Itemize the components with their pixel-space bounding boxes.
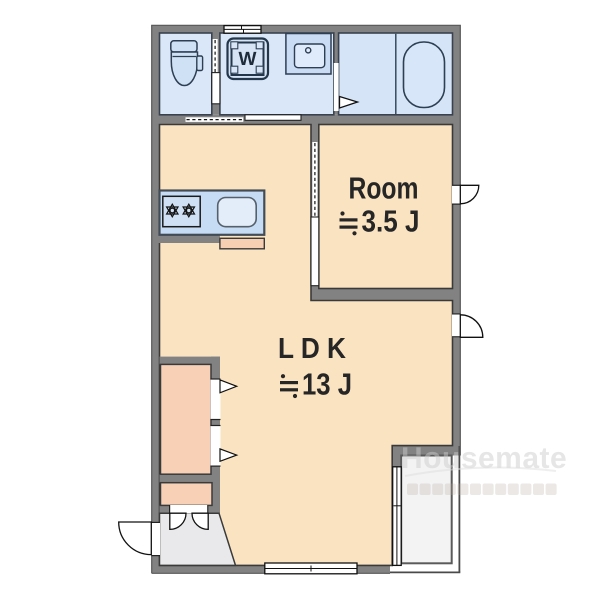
svg-text:3.5 J: 3.5 J xyxy=(362,205,420,239)
svg-text:L D K: L D K xyxy=(278,333,346,365)
svg-text:W: W xyxy=(239,49,257,70)
svg-text:13 J: 13 J xyxy=(302,368,352,402)
svg-text:Room: Room xyxy=(349,172,419,206)
